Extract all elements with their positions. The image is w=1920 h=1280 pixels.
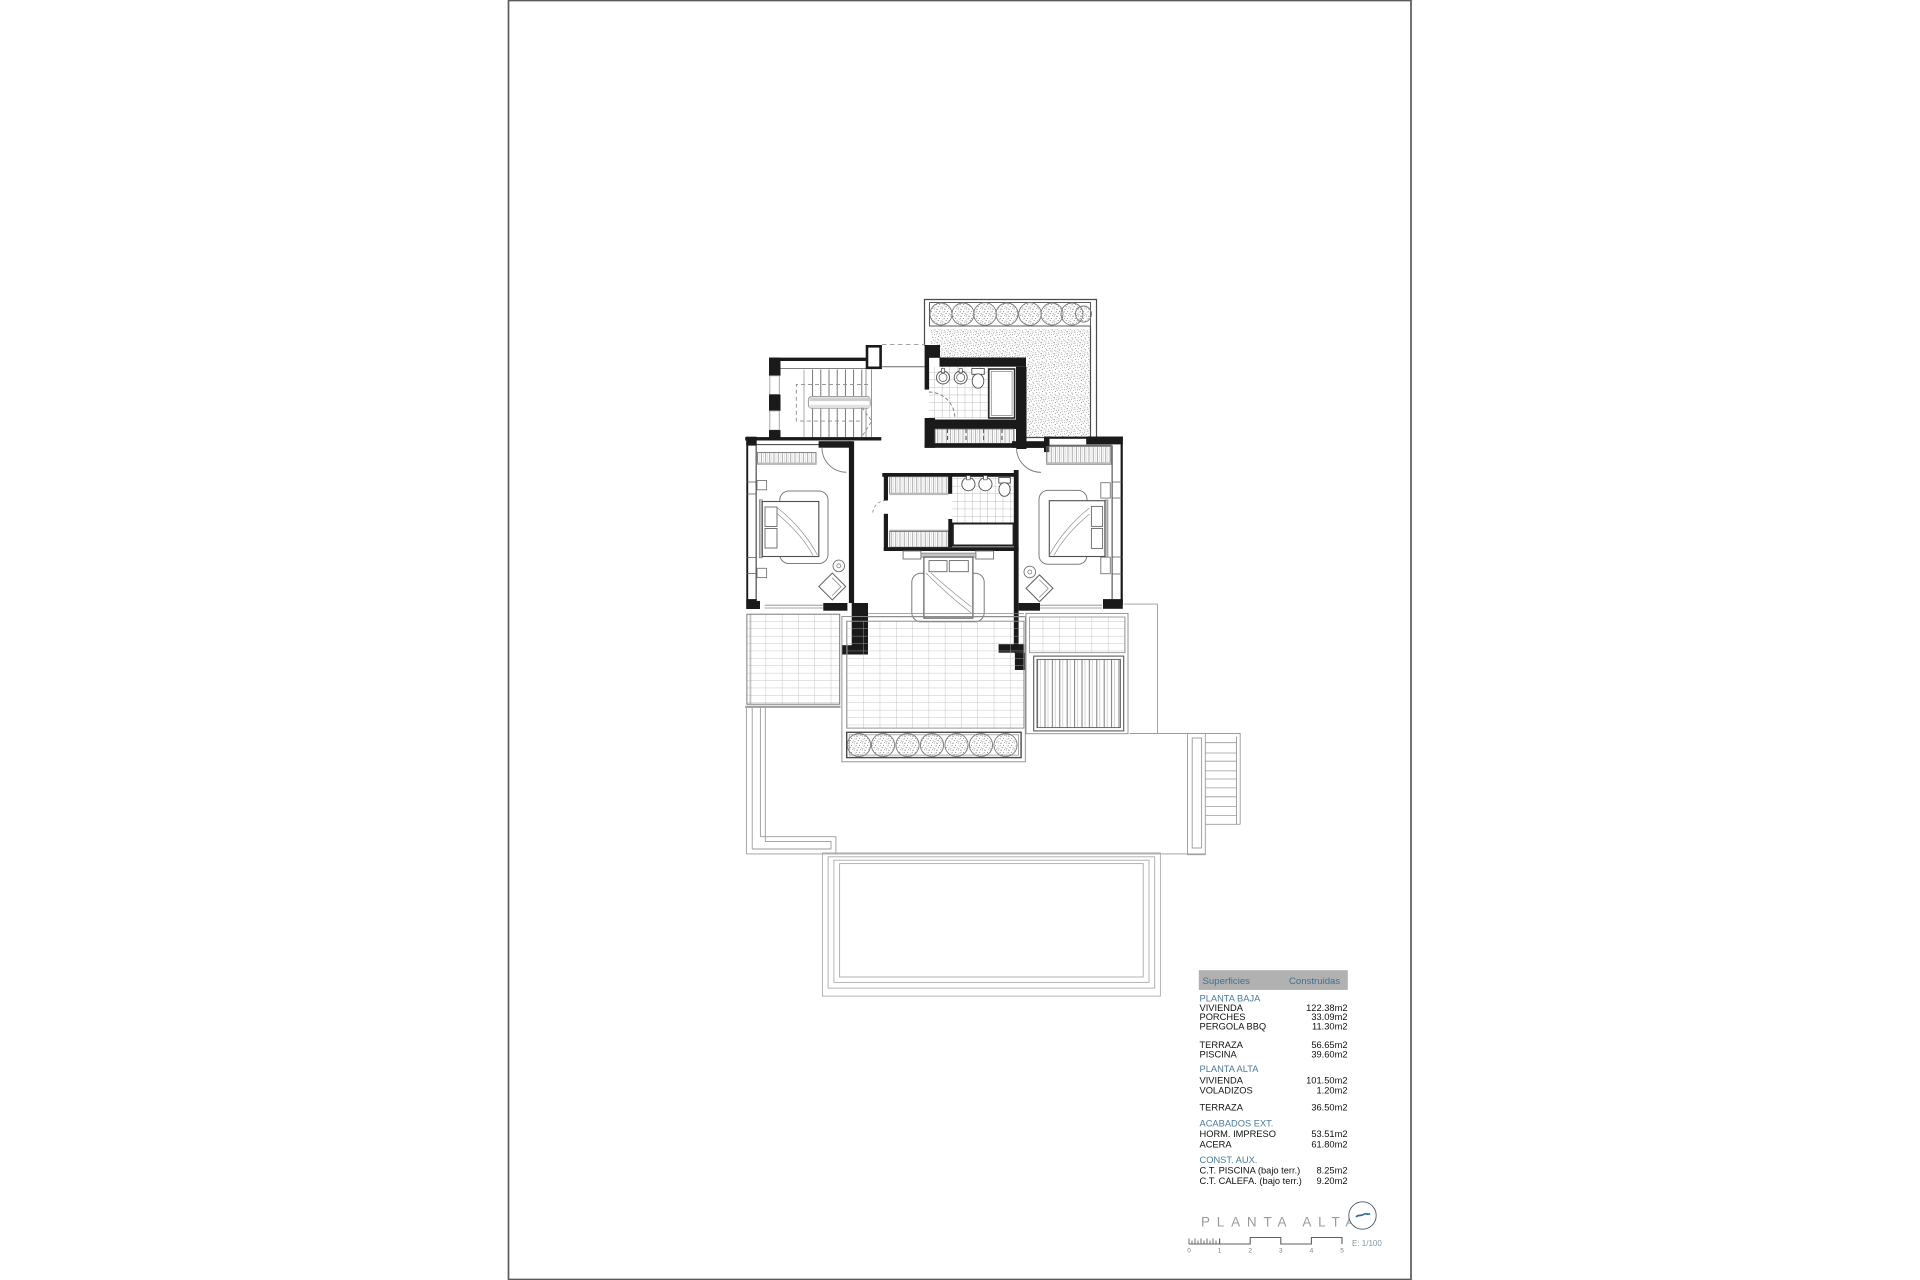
svg-text:Superficies: Superficies <box>1203 976 1251 987</box>
svg-text:C.T. PISCINA (bajo terr.): C.T. PISCINA (bajo terr.) <box>1200 1166 1301 1176</box>
svg-text:3: 3 <box>1279 1248 1283 1255</box>
svg-text:5: 5 <box>1340 1248 1344 1255</box>
svg-text:VOLADIZOS: VOLADIZOS <box>1200 1086 1253 1096</box>
svg-text:1: 1 <box>1218 1248 1222 1255</box>
svg-text:56.65m2: 56.65m2 <box>1311 1040 1347 1050</box>
svg-text:TERRAZA: TERRAZA <box>1200 1103 1244 1113</box>
svg-text:2: 2 <box>1248 1248 1252 1255</box>
svg-text:PLANTA ALTA: PLANTA ALTA <box>1200 1064 1260 1074</box>
svg-text:36.50m2: 36.50m2 <box>1311 1103 1347 1113</box>
svg-text:39.60m2: 39.60m2 <box>1311 1050 1347 1060</box>
svg-text:ACABADOS EXT.: ACABADOS EXT. <box>1200 1119 1274 1129</box>
svg-text:PERGOLA BBQ: PERGOLA BBQ <box>1200 1021 1267 1031</box>
svg-text:4: 4 <box>1310 1248 1314 1255</box>
svg-text:C.T. CALEFA. (bajo terr.): C.T. CALEFA. (bajo terr.) <box>1200 1176 1302 1186</box>
svg-text:PLANTA ALTA: PLANTA ALTA <box>1201 1215 1361 1230</box>
svg-text:E: 1/100: E: 1/100 <box>1352 1239 1382 1248</box>
svg-text:101.50m2: 101.50m2 <box>1306 1076 1347 1086</box>
svg-text:HORM. IMPRESO: HORM. IMPRESO <box>1200 1129 1276 1139</box>
svg-text:8.25m2: 8.25m2 <box>1316 1166 1347 1176</box>
svg-text:Construidas: Construidas <box>1289 976 1340 987</box>
svg-text:PISCINA: PISCINA <box>1200 1050 1238 1060</box>
svg-text:11.30m2: 11.30m2 <box>1312 1021 1348 1031</box>
svg-text:9.20m2: 9.20m2 <box>1316 1176 1347 1186</box>
svg-text:0: 0 <box>1187 1248 1191 1255</box>
svg-text:53.51m2: 53.51m2 <box>1311 1129 1347 1139</box>
svg-text:1.20m2: 1.20m2 <box>1316 1086 1347 1096</box>
svg-text:TERRAZA: TERRAZA <box>1200 1040 1244 1050</box>
svg-text:VIVIENDA: VIVIENDA <box>1200 1076 1244 1086</box>
svg-text:CONST. AUX.: CONST. AUX. <box>1200 1155 1258 1165</box>
svg-text:61.80m2: 61.80m2 <box>1311 1140 1347 1150</box>
svg-text:ACERA: ACERA <box>1200 1140 1233 1150</box>
